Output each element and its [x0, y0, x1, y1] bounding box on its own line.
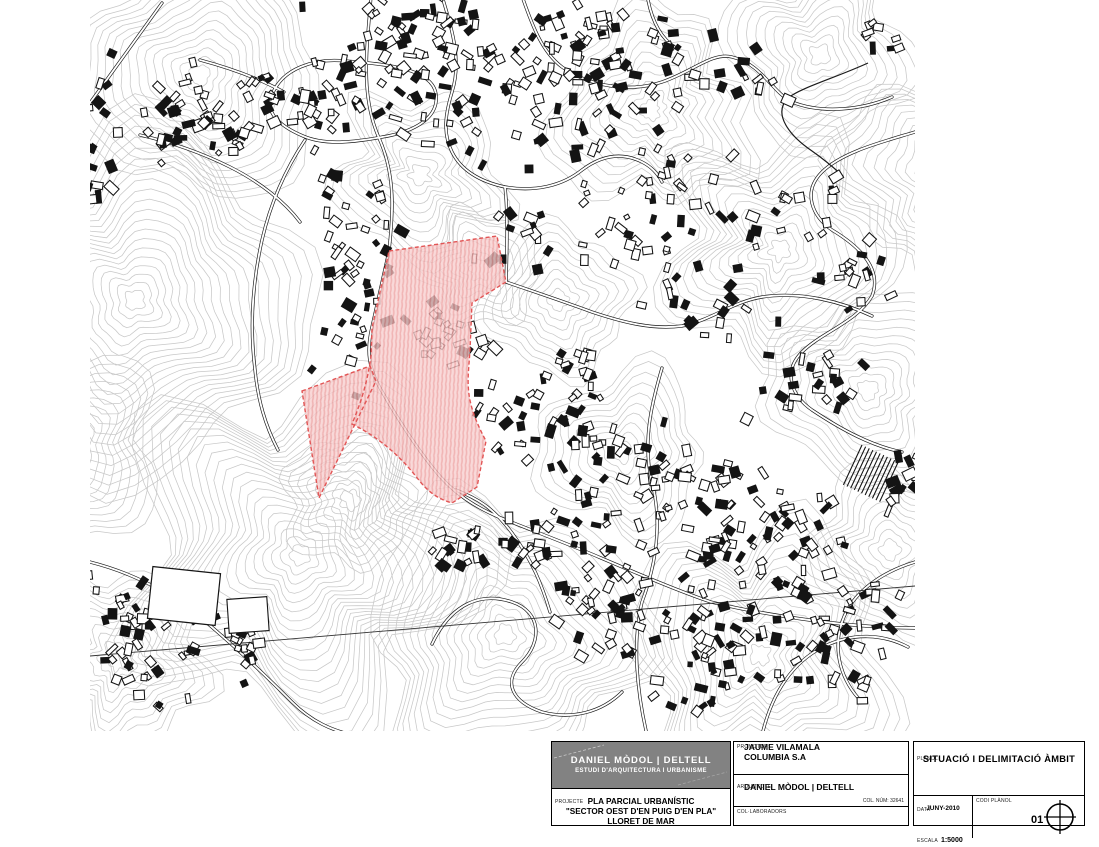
architect-label: ARQUITECTE [737, 784, 771, 790]
sheet-title: SITUACIÓ I DELIMITACIÓ ÀMBIT [914, 754, 1084, 764]
promoter-section: PROMOTOR: JAUME VILAMALA COLUMBIA S.A [734, 742, 908, 775]
scale-value: 1:5000 [941, 837, 963, 844]
architect-college-number: COL. NÚM: 32641 [863, 798, 904, 804]
project-section: PROJECTE PLA PARCIAL URBANÍSTIC "SECTOR … [552, 797, 730, 833]
drawing-sheet: { "titleblock": { "studio": { "name": "D… [0, 0, 1099, 829]
collaborators-section: COL·LABORADORS [734, 807, 908, 831]
title-block-sheet-info: PLÀNOL SITUACIÓ I DELIMITACIÓ ÀMBIT DATA… [913, 741, 1085, 826]
scale-label: ESCALA [917, 838, 938, 844]
north-compass-icon [1041, 798, 1079, 836]
scale-cell: ESCALA1:5000 [914, 826, 972, 846]
topographic-map-canvas [90, 0, 915, 731]
architect-section: ARQUITECTE DANIEL MÒDOL | DELTELL COL. N… [734, 782, 908, 807]
sheet-title-label: PLÀNOL [917, 756, 938, 762]
studio-decorative-lines [552, 742, 729, 786]
title-block-parties: PROMOTOR: JAUME VILAMALA COLUMBIA S.A AR… [733, 741, 909, 826]
studio-header: DANIEL MÒDOL | DELTELL ESTUDI D'ARQUITEC… [552, 742, 730, 789]
project-title-line2: "SECTOR OEST D'EN PUIG D'EN PLA" [552, 807, 730, 817]
project-title-line3: LLORET DE MAR [552, 817, 730, 827]
sheet-number-cell: CODI PLÀNOL 01 [973, 796, 1084, 838]
situation-map [90, 0, 915, 731]
date-cell: DATA JUNY-2010 [914, 805, 972, 826]
sheet-title-section: PLÀNOL SITUACIÓ I DELIMITACIÓ ÀMBIT [914, 754, 1084, 796]
project-label: PROJECTE [555, 799, 583, 805]
sheet-number-label: CODI PLÀNOL [976, 798, 1012, 804]
date-scale-column: DATA JUNY-2010 ESCALA1:5000 [914, 796, 973, 838]
title-block-studio-project: DANIEL MÒDOL | DELTELL ESTUDI D'ARQUITEC… [551, 741, 731, 826]
promoter-name-line2: COLUMBIA S.A [744, 752, 908, 762]
promoter-label: PROMOTOR: [737, 744, 770, 750]
collaborators-label: COL·LABORADORS [737, 809, 786, 815]
date-label: DATA [917, 807, 930, 813]
